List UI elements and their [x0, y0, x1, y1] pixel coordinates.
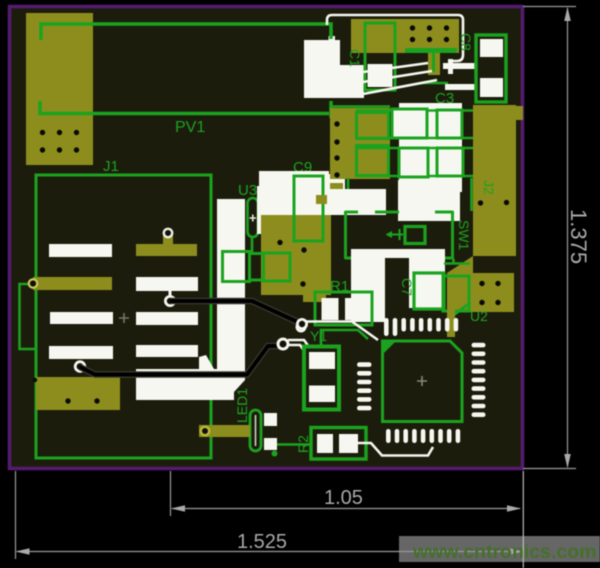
svg-text:J2: J2 — [481, 180, 497, 195]
svg-text:1.05: 1.05 — [324, 487, 363, 509]
svg-text:SW1: SW1 — [456, 220, 472, 251]
svg-text:LED1: LED1 — [234, 388, 250, 423]
svg-text:1.375: 1.375 — [566, 209, 591, 264]
svg-text:C1: C1 — [347, 49, 363, 67]
svg-text:www.cntronics.com: www.cntronics.com — [412, 541, 596, 563]
svg-text:U2: U2 — [470, 308, 488, 324]
svg-text:PV1: PV1 — [175, 119, 205, 136]
svg-text:C8: C8 — [458, 33, 474, 51]
svg-text:J1: J1 — [103, 158, 119, 175]
svg-text:1.525: 1.525 — [237, 531, 287, 553]
svg-text:U3: U3 — [238, 182, 257, 199]
svg-text:R2: R2 — [295, 435, 311, 453]
